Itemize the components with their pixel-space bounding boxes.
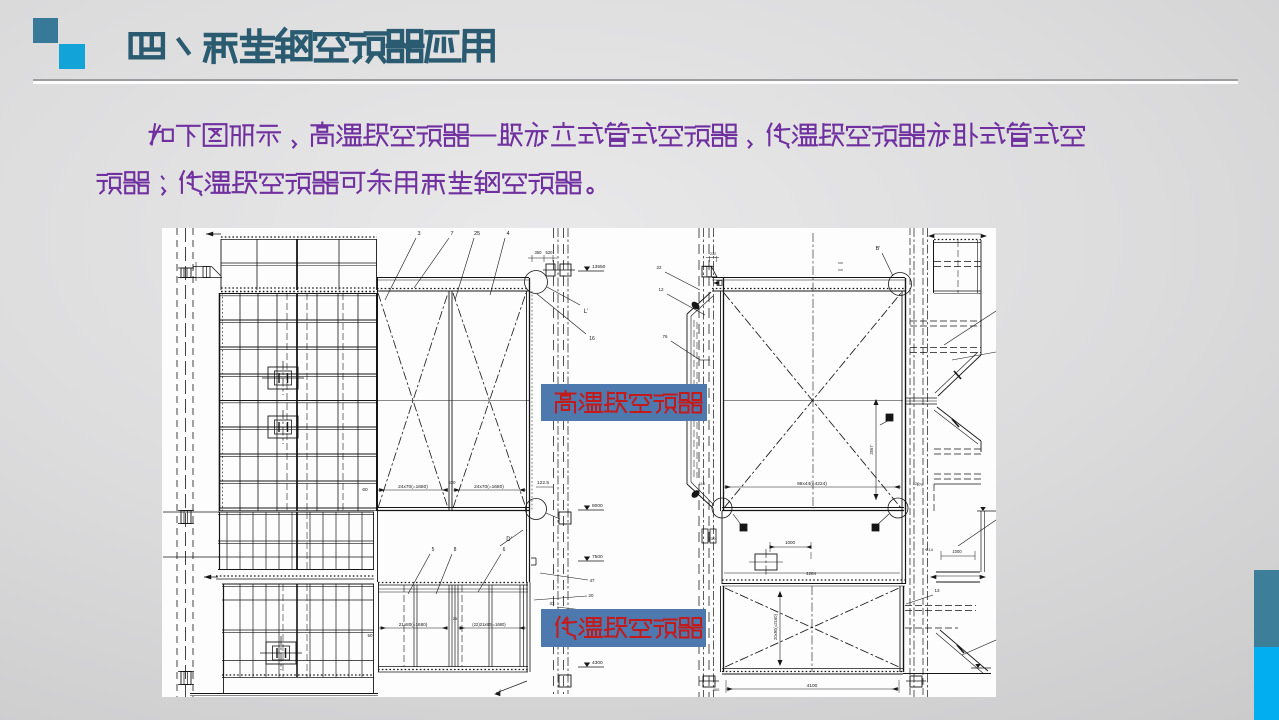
svg-text:1000: 1000 <box>785 540 796 545</box>
svg-text:98x44(=4224): 98x44(=4224) <box>797 481 827 487</box>
svg-text:520: 520 <box>546 250 554 255</box>
svg-text:1000: 1000 <box>952 549 962 554</box>
svg-text:22: 22 <box>656 265 662 270</box>
svg-text:3: 3 <box>417 231 420 237</box>
svg-text:8: 8 <box>454 547 457 553</box>
svg-text:24x70(=1680): 24x70(=1680) <box>398 484 428 490</box>
svg-text:4: 4 <box>506 231 509 237</box>
svg-text:76: 76 <box>662 334 668 339</box>
svg-text:12: 12 <box>658 287 664 292</box>
svg-text:122.5: 122.5 <box>537 480 549 486</box>
svg-text:33: 33 <box>549 601 555 606</box>
svg-text:7500: 7500 <box>592 554 603 560</box>
svg-text:7: 7 <box>450 231 453 237</box>
svg-text:4100: 4100 <box>807 683 818 689</box>
svg-text:20x90(=2160): 20x90(=2160) <box>773 613 778 640</box>
svg-text:2567: 2567 <box>869 445 874 455</box>
svg-text:232: 232 <box>710 252 716 256</box>
svg-text:8000: 8000 <box>592 503 603 509</box>
svg-text:25: 25 <box>474 231 480 237</box>
svg-text:20: 20 <box>588 593 594 598</box>
svg-text:620: 620 <box>449 480 457 485</box>
svg-text:60: 60 <box>362 487 368 493</box>
svg-text:Φ14: Φ14 <box>925 547 933 552</box>
svg-text:230: 230 <box>709 536 716 541</box>
svg-text:6: 6 <box>503 547 506 553</box>
svg-text:L': L' <box>584 309 588 315</box>
svg-text:B': B' <box>876 246 881 252</box>
svg-text:25: 25 <box>453 616 458 621</box>
svg-text:21x80(=1680): 21x80(=1680) <box>399 622 428 627</box>
svg-text:170: 170 <box>917 482 924 487</box>
svg-text:13550: 13550 <box>592 264 606 270</box>
svg-text:16: 16 <box>589 336 595 342</box>
svg-text:5: 5 <box>432 547 435 553</box>
svg-text:50: 50 <box>367 633 373 638</box>
svg-text:47: 47 <box>589 578 595 583</box>
svg-text:24x70(=1680): 24x70(=1680) <box>474 484 504 490</box>
svg-text:350: 350 <box>535 250 543 255</box>
svg-text:110: 110 <box>699 481 706 486</box>
svg-text:4300: 4300 <box>592 660 603 666</box>
svg-text:(22)21x80(=1680): (22)21x80(=1680) <box>472 622 506 627</box>
svg-text:4284: 4284 <box>806 571 817 576</box>
svg-text:400: 400 <box>713 687 720 692</box>
svg-text:13: 13 <box>934 588 940 593</box>
